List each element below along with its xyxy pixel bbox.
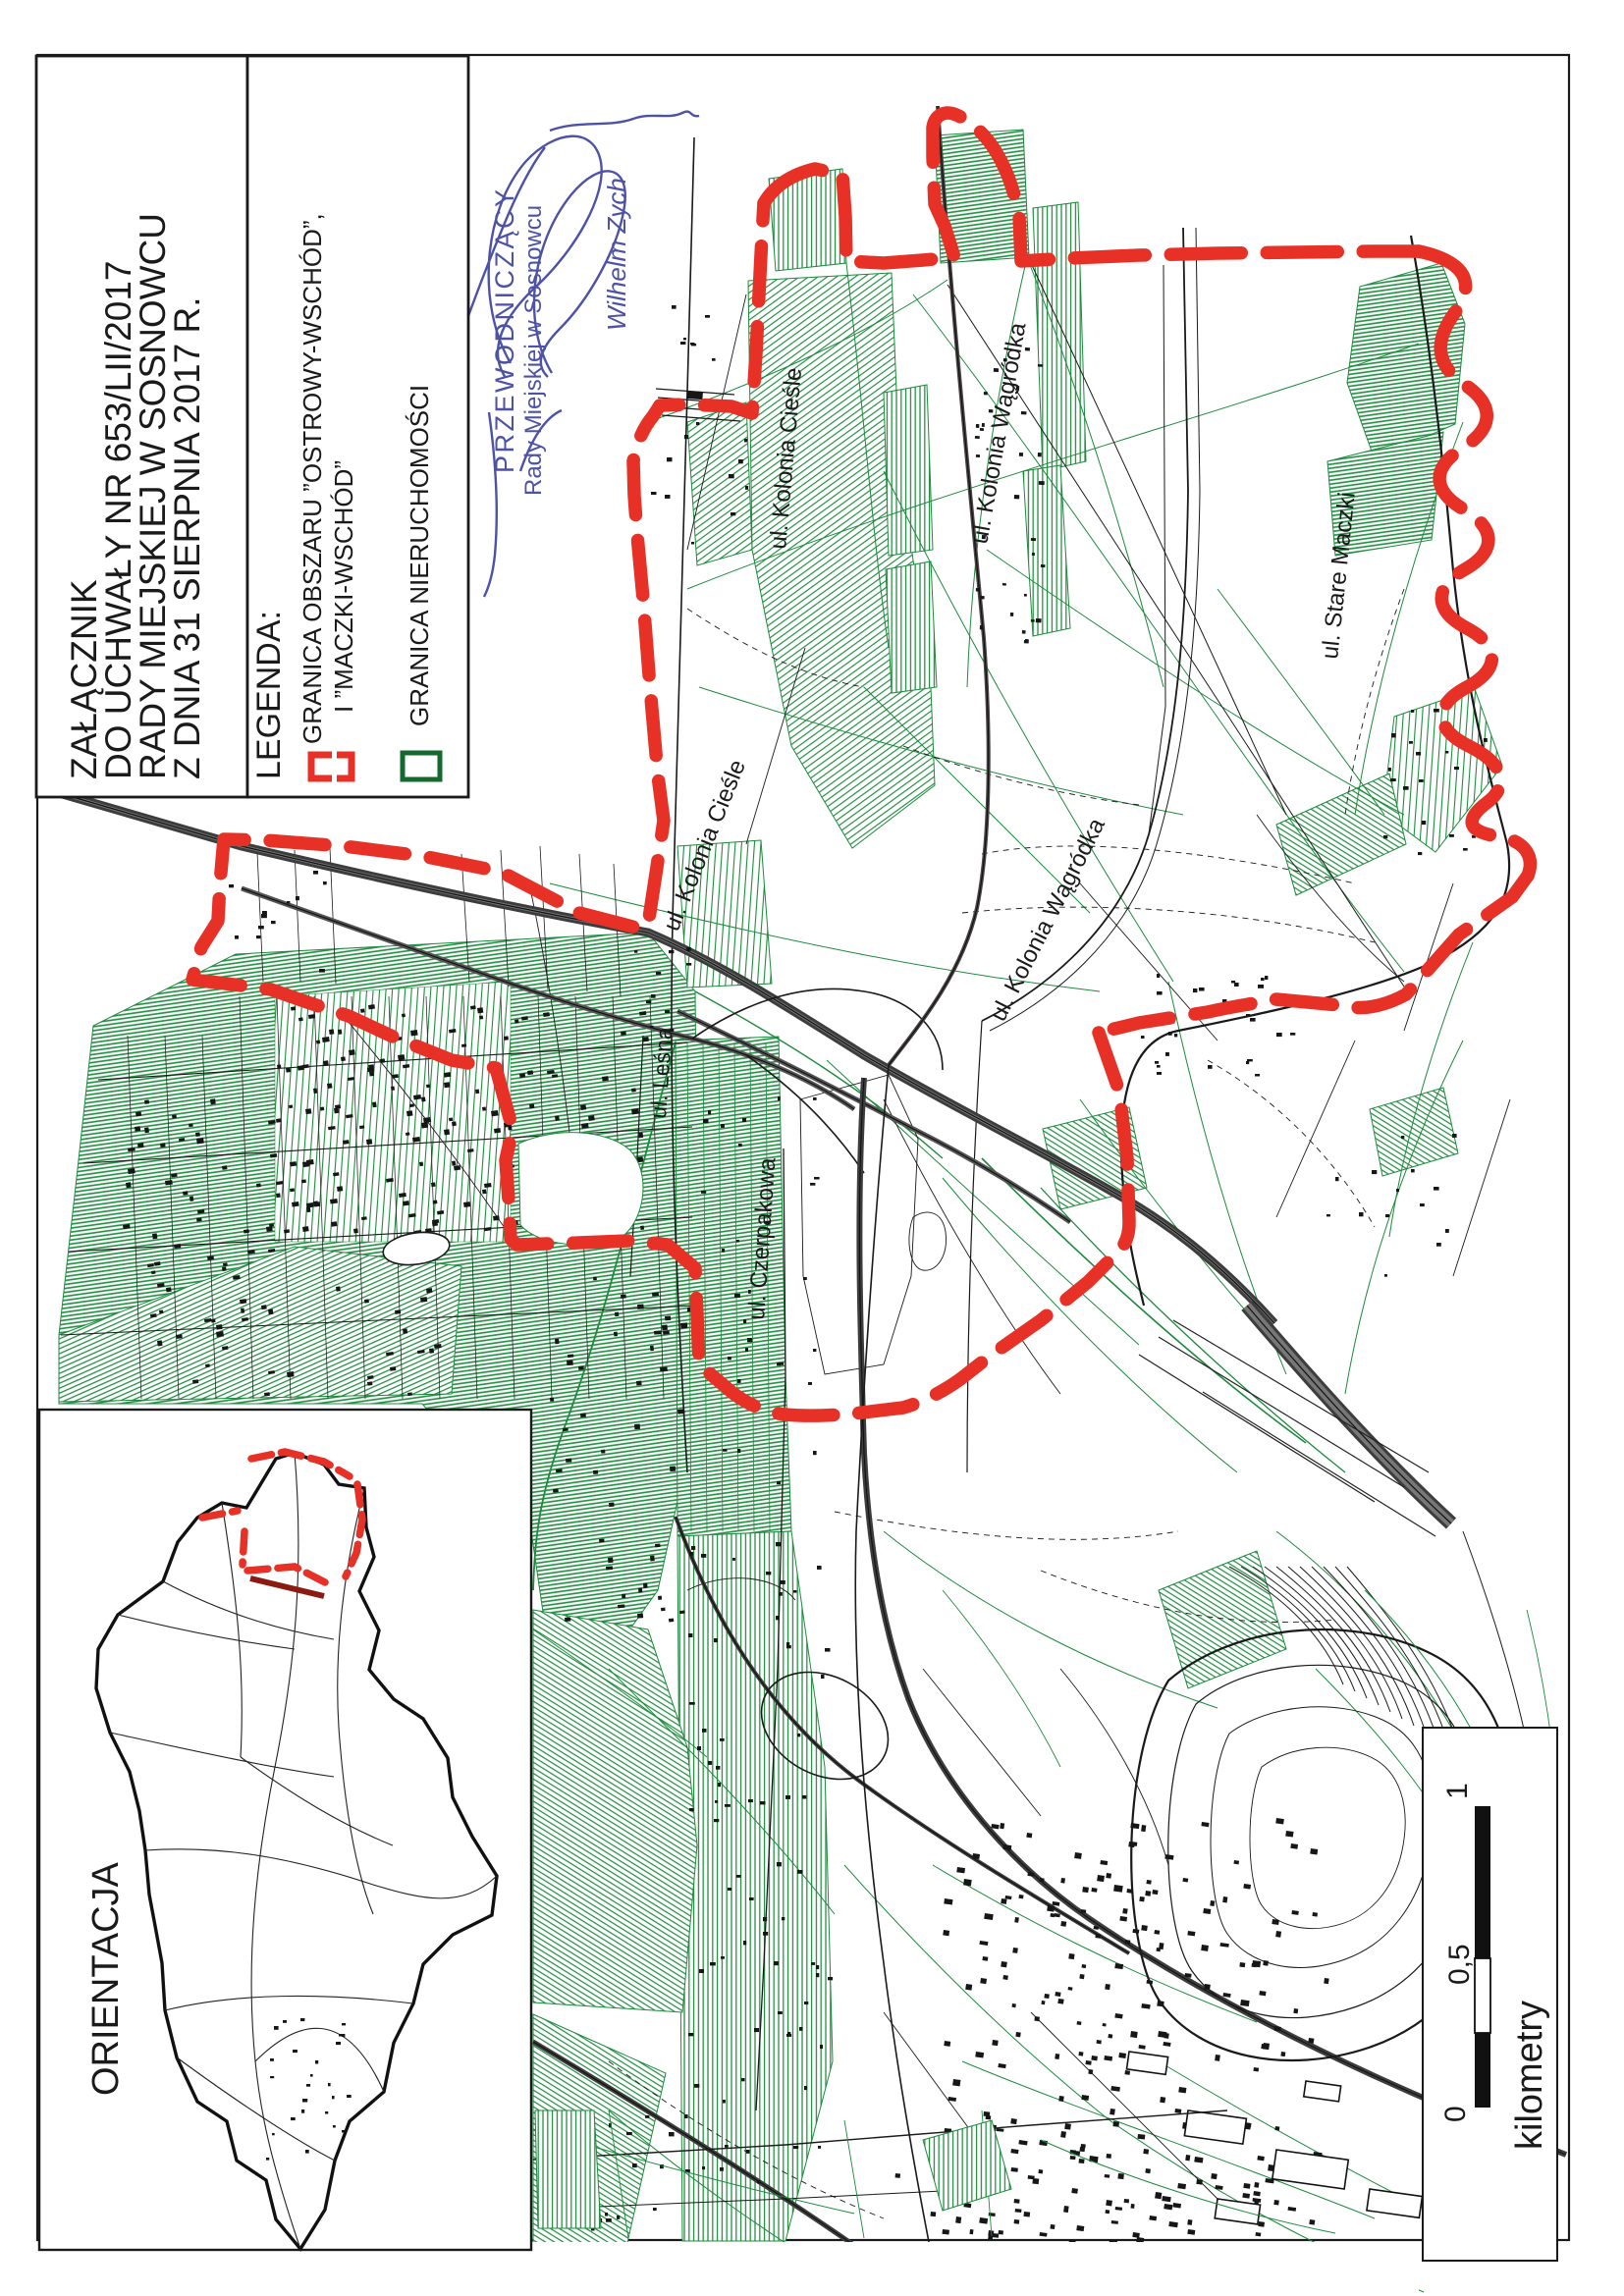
svg-text:0,5: 0,5 <box>1443 1944 1476 1985</box>
svg-text:Wilhelm Zych: Wilhelm Zych <box>602 178 631 331</box>
svg-text:LEGENDA:: LEGENDA: <box>250 611 288 779</box>
svg-text:0: 0 <box>1439 2106 1472 2122</box>
svg-text:Z DNIA 31 SIERPNIA 2017 R.: Z DNIA 31 SIERPNIA 2017 R. <box>167 297 207 780</box>
svg-text:ORIENTACJA: ORIENTACJA <box>85 1861 127 2096</box>
svg-text:1: 1 <box>1441 1783 1474 1799</box>
svg-text:GRANICA NIERUCHOMOŚCI: GRANICA NIERUCHOMOŚCI <box>405 385 434 726</box>
svg-text:kilometry: kilometry <box>1509 2001 1550 2150</box>
svg-text:GRANICA OBSZARU ”OSTROWY-WSCHÓ: GRANICA OBSZARU ”OSTROWY-WSCHÓD”, <box>298 213 327 744</box>
svg-text:I ”MACZKI-WSCHÓD”: I ”MACZKI-WSCHÓD” <box>329 460 358 713</box>
